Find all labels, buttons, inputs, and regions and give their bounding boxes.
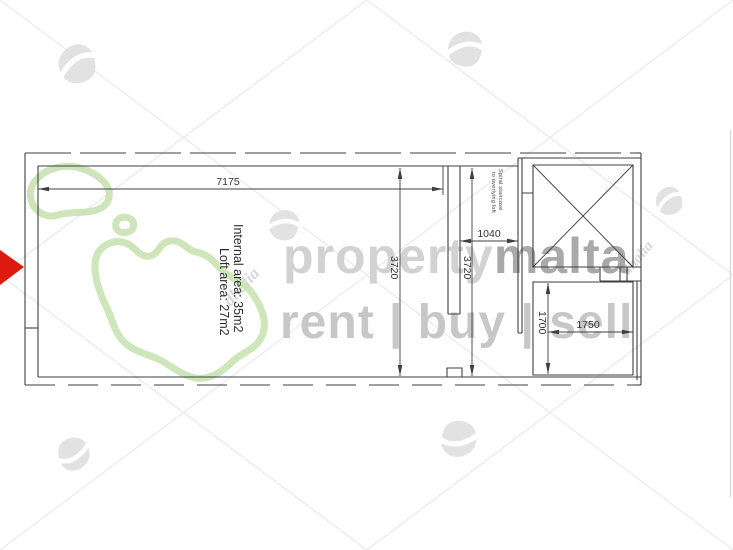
gozo-outline — [30, 166, 109, 216]
door-jamb-notch — [447, 368, 462, 377]
brand-swirl-icon — [436, 418, 481, 461]
loft-area-label: Loft area: 27m2 — [217, 248, 231, 336]
brand-watermark-text: propertymalta — [283, 228, 630, 284]
floor-plan: dhalia dhalia propertymalta rent | buy |… — [0, 0, 733, 550]
brand-swirl-icon — [53, 40, 102, 88]
area-label: Internal area: 35m2 Loft area: 27m2 — [217, 224, 245, 336]
dimension-label-7175: 7175 — [216, 176, 240, 188]
floor-plan-page: dhalia dhalia propertymalta rent | buy |… — [0, 0, 733, 550]
entrance-arrow-icon — [0, 250, 24, 285]
internal-area-label: Internal area: 35m2 — [231, 224, 245, 332]
stair-note-line2: to overlying loft — [490, 172, 496, 213]
dimension-label-3720-room: 3720 — [388, 256, 400, 280]
dimension-label-1750: 1750 — [576, 319, 600, 331]
dimension-label-1040: 1040 — [477, 228, 501, 240]
brand-watermark-second: malta — [494, 228, 630, 284]
dimension-label-1700: 1700 — [536, 311, 548, 335]
brand-swirl-icon — [651, 183, 688, 218]
brand-swirl-icon — [53, 435, 94, 474]
stair-note-line1: Spiral staircase — [497, 169, 503, 210]
comino-outline — [116, 217, 134, 233]
dimension-label-3720-corridor: 3720 — [461, 256, 473, 280]
stair-note: Spiral staircase to overlying loft — [490, 169, 503, 213]
